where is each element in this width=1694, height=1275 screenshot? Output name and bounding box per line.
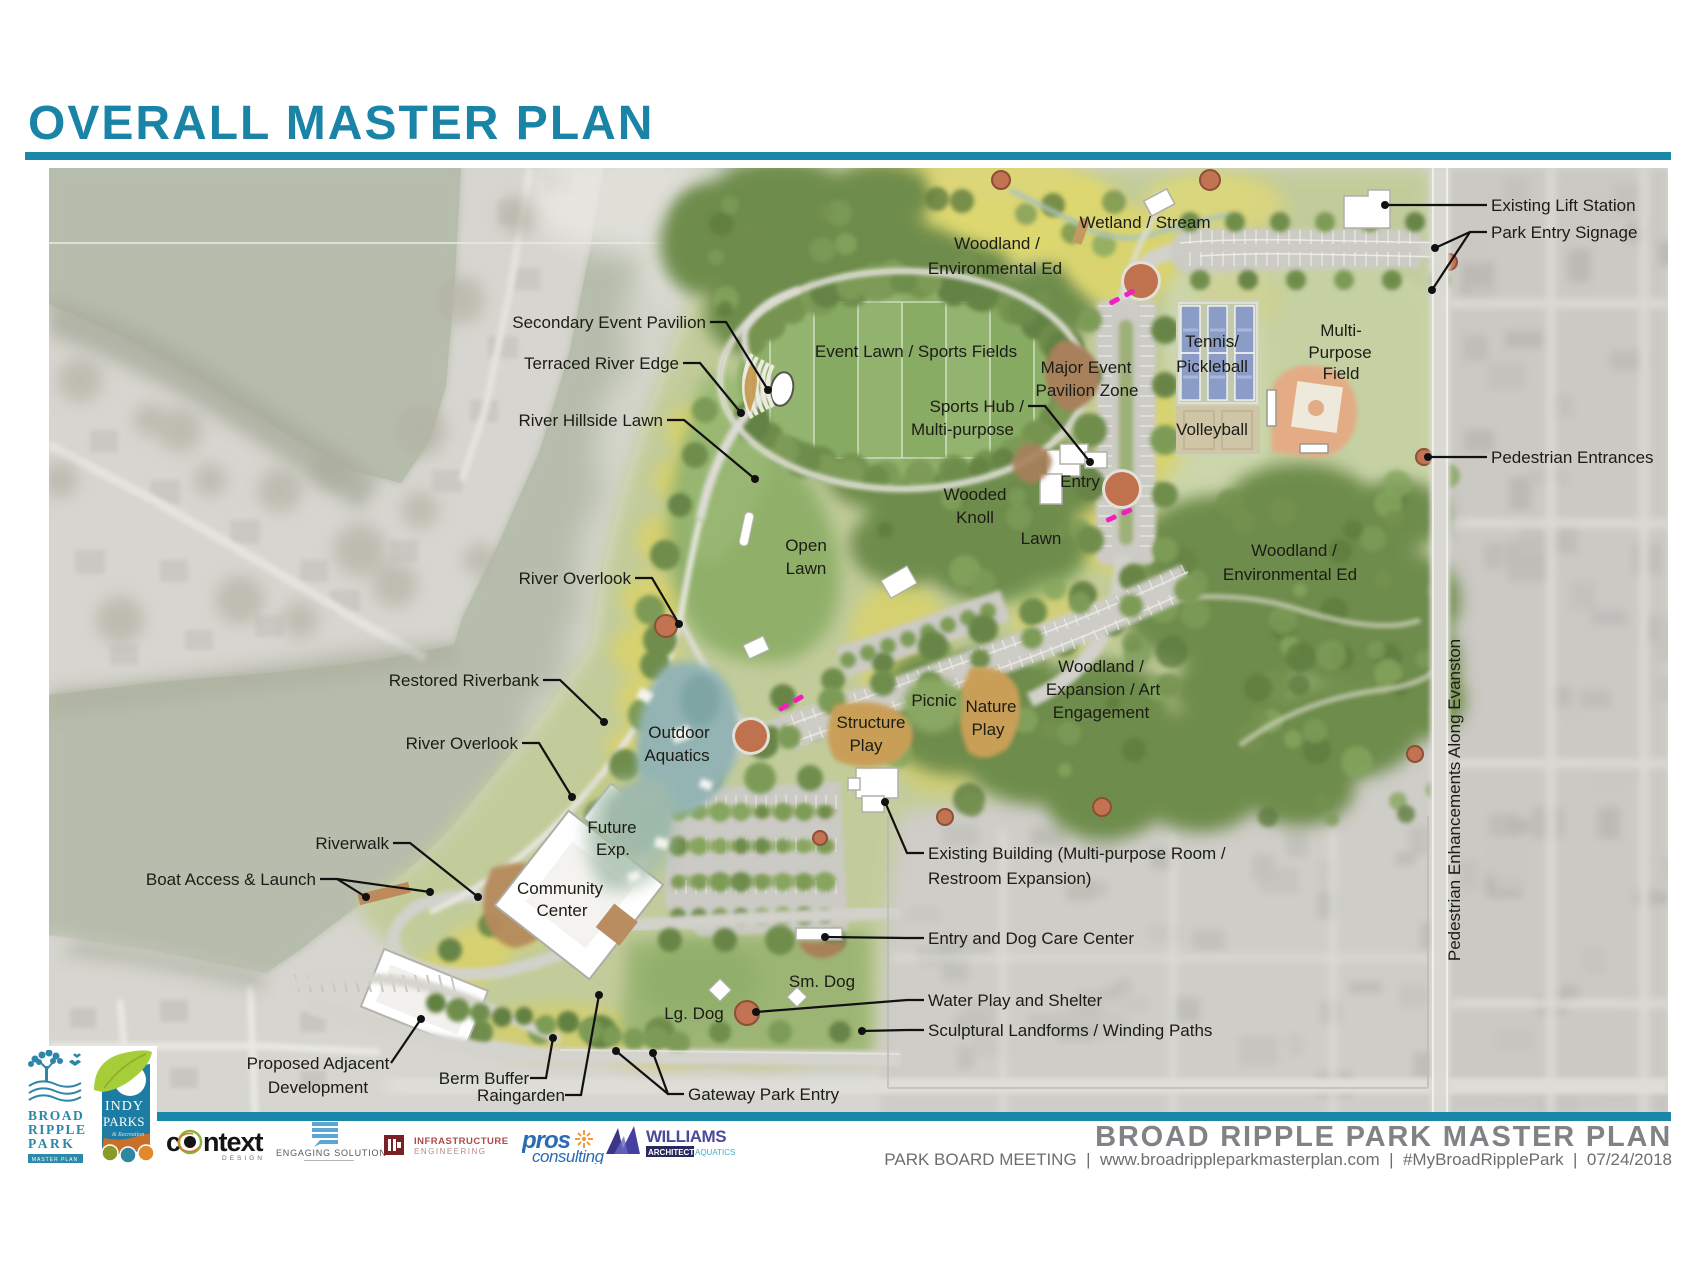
- svg-text:Open: Open: [785, 536, 827, 555]
- svg-text:Multi-: Multi-: [1320, 321, 1362, 340]
- svg-text:Sculptural Landforms / Winding: Sculptural Landforms / Winding Paths: [928, 1021, 1212, 1040]
- svg-text:Entry and Dog Care Center: Entry and Dog Care Center: [928, 929, 1134, 948]
- svg-text:Exp.: Exp.: [596, 840, 630, 859]
- svg-text:Raingarden: Raingarden: [477, 1086, 565, 1105]
- svg-text:Environmental Ed: Environmental Ed: [928, 259, 1062, 278]
- svg-text:Pavilion Zone: Pavilion Zone: [1035, 381, 1138, 400]
- svg-text:Purpose: Purpose: [1308, 343, 1371, 362]
- svg-text:Proposed Adjacent: Proposed Adjacent: [247, 1054, 390, 1073]
- svg-text:Development: Development: [268, 1078, 368, 1097]
- svg-text:Secondary Event Pavilion: Secondary Event Pavilion: [512, 313, 706, 332]
- svg-text:Restroom Expansion): Restroom Expansion): [928, 869, 1091, 888]
- svg-text:Expansion / Art: Expansion / Art: [1046, 680, 1161, 699]
- svg-text:Center: Center: [536, 901, 587, 920]
- svg-text:Engagement: Engagement: [1053, 703, 1150, 722]
- svg-text:Field: Field: [1323, 364, 1360, 383]
- svg-text:Lawn: Lawn: [786, 559, 827, 578]
- svg-text:Woodland /: Woodland /: [954, 234, 1040, 253]
- svg-text:Play: Play: [971, 720, 1005, 739]
- svg-text:Restored Riverbank: Restored Riverbank: [389, 671, 540, 690]
- svg-text:INDY: INDY: [105, 1099, 144, 1114]
- svg-text:River Hillside Lawn: River Hillside Lawn: [518, 411, 663, 430]
- svg-text:Lg. Dog: Lg. Dog: [664, 1004, 724, 1023]
- svg-text:Future: Future: [587, 818, 636, 837]
- svg-text:Event Lawn / Sports Fields: Event Lawn / Sports Fields: [815, 342, 1017, 361]
- svg-text:Tennis/: Tennis/: [1185, 332, 1239, 351]
- svg-text:Sports Hub /: Sports Hub /: [930, 397, 1025, 416]
- svg-text:Sm. Dog: Sm. Dog: [789, 972, 855, 991]
- svg-text:Woodland /: Woodland /: [1251, 541, 1337, 560]
- svg-text:Knoll: Knoll: [956, 508, 994, 527]
- svg-text:Play: Play: [849, 736, 883, 755]
- svg-text:Pedestrian Entrances: Pedestrian Entrances: [1491, 448, 1654, 467]
- svg-text:Major Event: Major Event: [1041, 358, 1132, 377]
- svg-text:Water Play and Shelter: Water Play and Shelter: [928, 991, 1103, 1010]
- svg-text:Riverwalk: Riverwalk: [315, 834, 389, 853]
- svg-text:Wooded: Wooded: [943, 485, 1006, 504]
- svg-text:Volleyball: Volleyball: [1176, 420, 1248, 439]
- svg-text:Outdoor: Outdoor: [648, 723, 710, 742]
- svg-text:River Overlook: River Overlook: [406, 734, 519, 753]
- svg-text:River Overlook: River Overlook: [519, 569, 632, 588]
- svg-text:Gateway Park Entry: Gateway Park Entry: [688, 1085, 840, 1104]
- svg-text:Existing Lift Station: Existing Lift Station: [1491, 196, 1636, 215]
- svg-text:Structure: Structure: [837, 713, 906, 732]
- svg-text:Lawn: Lawn: [1021, 529, 1062, 548]
- svg-text:Wetland / Stream: Wetland / Stream: [1079, 213, 1210, 232]
- svg-text:Entry: Entry: [1060, 472, 1100, 491]
- svg-text:Pedestrian Enhancements Along: Pedestrian Enhancements Along Evanston: [1445, 639, 1464, 961]
- svg-text:Environmental Ed: Environmental Ed: [1223, 565, 1357, 584]
- svg-text:Picnic: Picnic: [911, 691, 957, 710]
- svg-text:Existing Building (Multi-purpo: Existing Building (Multi-purpose Room /: [928, 844, 1226, 863]
- svg-text:Community: Community: [517, 879, 603, 898]
- svg-text:Aquatics: Aquatics: [644, 746, 709, 765]
- svg-text:Pickleball: Pickleball: [1176, 357, 1248, 376]
- svg-text:Terraced River Edge: Terraced River Edge: [524, 354, 679, 373]
- svg-text:Multi-purpose: Multi-purpose: [911, 420, 1014, 439]
- svg-text:Boat Access & Launch: Boat Access & Launch: [146, 870, 316, 889]
- svg-text:Nature: Nature: [965, 697, 1016, 716]
- svg-text:Park Entry Signage: Park Entry Signage: [1491, 223, 1637, 242]
- svg-text:Woodland /: Woodland /: [1058, 657, 1144, 676]
